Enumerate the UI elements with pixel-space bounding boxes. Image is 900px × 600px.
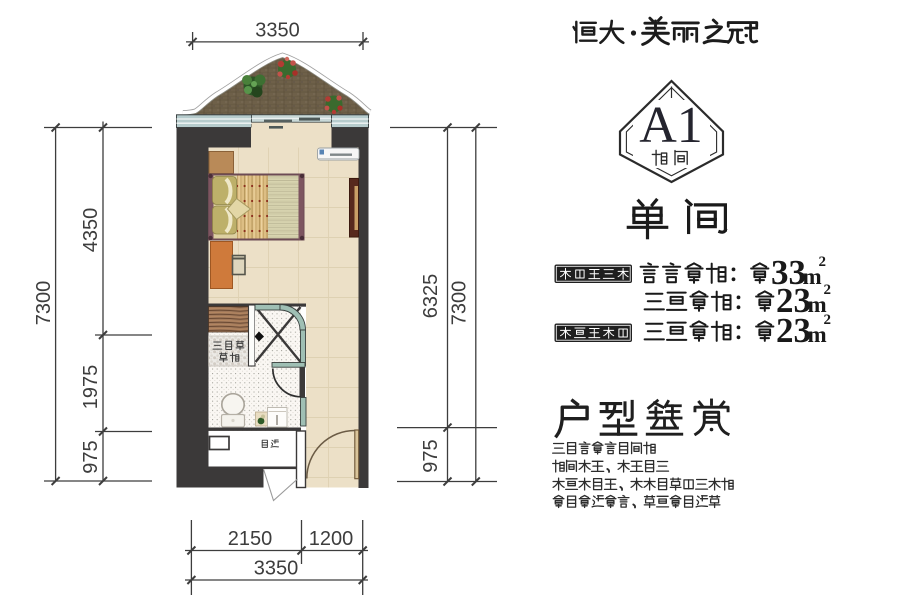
svg-text:23: 23 — [776, 311, 811, 350]
svg-text:2150: 2150 — [228, 528, 273, 550]
svg-text:7300: 7300 — [449, 281, 471, 326]
svg-text:3350: 3350 — [255, 20, 300, 42]
svg-text:1200: 1200 — [309, 528, 354, 550]
svg-text:2: 2 — [819, 254, 827, 270]
svg-text:4350: 4350 — [80, 208, 102, 253]
svg-text:7300: 7300 — [33, 281, 55, 326]
svg-text:1975: 1975 — [80, 365, 102, 410]
svg-text:A1: A1 — [639, 97, 703, 154]
svg-text:6325: 6325 — [420, 274, 442, 319]
svg-text:2: 2 — [824, 312, 832, 328]
svg-text:975: 975 — [80, 440, 102, 473]
svg-text:3350: 3350 — [254, 558, 299, 580]
svg-text:975: 975 — [420, 439, 442, 472]
svg-text:2: 2 — [824, 282, 832, 298]
